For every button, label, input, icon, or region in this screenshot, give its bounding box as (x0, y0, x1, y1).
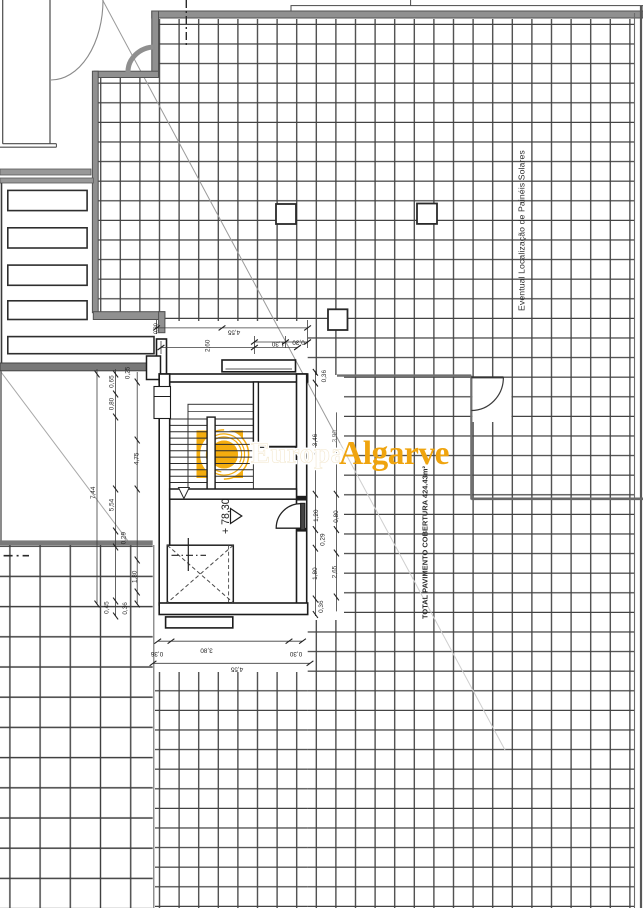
svg-text:0,80: 0,80 (109, 397, 116, 410)
svg-text:TOTAL PAVIMENTO COBERTURA 424.: TOTAL PAVIMENTO COBERTURA 424.43m² (421, 466, 430, 619)
svg-text:0,65: 0,65 (109, 375, 116, 388)
svg-text:0,29: 0,29 (121, 532, 128, 545)
svg-text:2,65: 2,65 (332, 565, 339, 578)
svg-text:Europa: Europa (251, 439, 345, 470)
svg-text:4,55: 4,55 (230, 665, 243, 672)
svg-text:1,80: 1,80 (312, 567, 319, 580)
svg-text:0,36: 0,36 (150, 650, 163, 657)
svg-text:0,30: 0,30 (289, 650, 302, 657)
svg-text:0,25: 0,25 (125, 366, 132, 379)
svg-text:1,80: 1,80 (132, 570, 139, 583)
svg-text:0,45: 0,45 (104, 601, 111, 614)
svg-text:0,30: 0,30 (292, 339, 305, 346)
svg-text:4,55: 4,55 (227, 328, 240, 335)
svg-text:0,30: 0,30 (154, 323, 160, 334)
svg-text:5,54: 5,54 (109, 498, 116, 511)
svg-text:0,36: 0,36 (318, 600, 325, 613)
svg-text:0,36: 0,36 (122, 602, 129, 615)
svg-text:2,60: 2,60 (205, 339, 212, 352)
svg-text:Eventual Localização de Painéi: Eventual Localização de Painéis Solares (517, 150, 527, 311)
svg-text:0,80: 0,80 (333, 510, 340, 523)
svg-text:7,44: 7,44 (90, 486, 97, 499)
svg-text:1,20: 1,20 (313, 509, 320, 522)
svg-text:3,80: 3,80 (200, 647, 213, 654)
svg-text:1,30: 1,30 (271, 340, 284, 347)
svg-text:Algarve: Algarve (339, 435, 449, 472)
svg-text:4,75: 4,75 (134, 452, 141, 465)
svg-text:0,36: 0,36 (321, 370, 328, 383)
svg-text:0,29: 0,29 (319, 533, 326, 546)
